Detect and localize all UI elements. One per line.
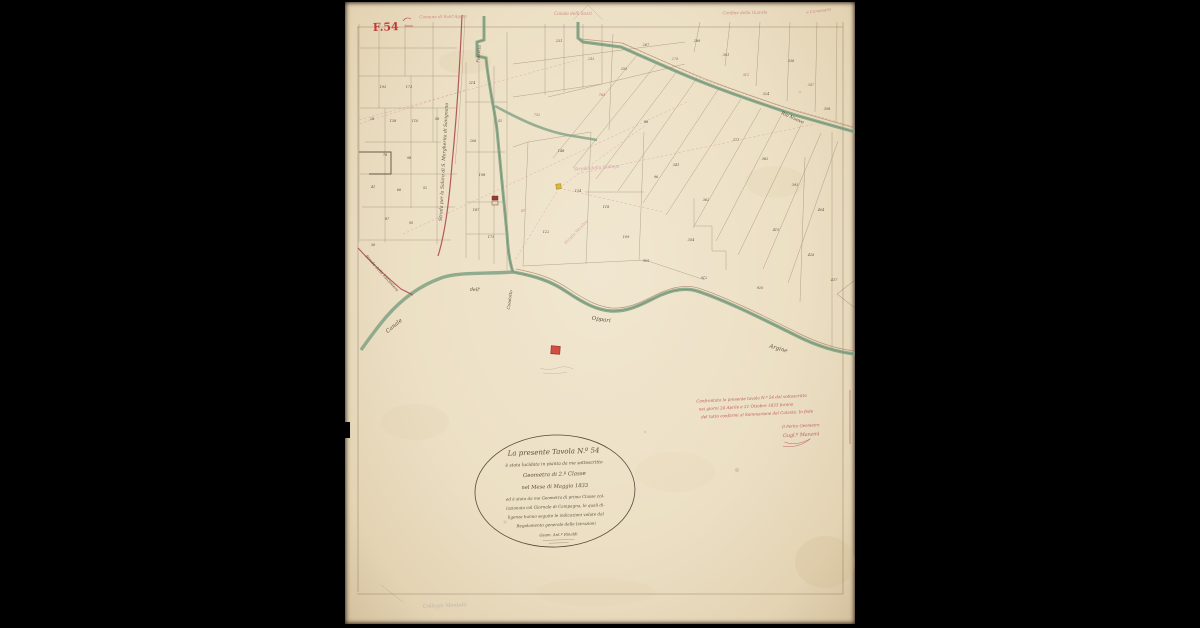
- label-gallega: Strada della Gallega: [574, 164, 620, 172]
- label-condotto: Condotto: [506, 289, 514, 309]
- parcel-number: 336: [788, 59, 795, 63]
- parcel-number: 28: [369, 117, 375, 121]
- parcel-number: 173: [406, 85, 412, 89]
- label-pencil-note: Collegio Montalti: [423, 602, 468, 610]
- parcel-number: 920: [757, 286, 764, 290]
- parcel-number: 301: [723, 53, 729, 57]
- parcel-number: 912: [701, 276, 707, 280]
- parcel-number: 52: [423, 186, 427, 190]
- parcel-number: 415: [772, 228, 779, 232]
- sheet-number-flourish: [403, 18, 413, 26]
- survey-lines: [359, 60, 815, 260]
- cartouche: La presente Tavola N.º 54 è stata lucida…: [473, 432, 637, 550]
- parcel-number: 214: [468, 81, 475, 85]
- parcel-number: 347: [808, 83, 815, 87]
- sheet-number-label: F.54: [373, 20, 400, 34]
- parcel-number: 148: [558, 149, 565, 153]
- parcel-number: 206: [469, 139, 477, 143]
- cartouche-line: ed è stata da me Geometra di prima Class…: [506, 493, 605, 501]
- label-oppari: Oppari: [591, 316, 611, 325]
- parcel-number: 87: [385, 217, 390, 221]
- cartouche-line: Geometra di 2.ª Classe: [523, 470, 586, 479]
- parcel-number: 278: [671, 57, 679, 61]
- parcel-number: 193: [380, 85, 386, 89]
- edge-note: Confine della Guarda: [722, 10, 768, 16]
- parcel-number: 341: [673, 163, 679, 167]
- background: F.54 Comune di Sant'Agata Canale delli S…: [0, 0, 1200, 628]
- parcel-number: 255: [620, 67, 627, 71]
- cartouche-line: La presente Tavola N.º 54: [507, 446, 600, 457]
- parcel-number: 437: [830, 278, 838, 282]
- note-signature-title: Il Perito Geometra: [781, 422, 820, 429]
- parcel-number: 231: [555, 39, 562, 43]
- parcel-number: 371: [733, 138, 739, 142]
- canal-rionuovo: [578, 22, 855, 132]
- building-yellow: [556, 184, 561, 189]
- parcel-number: 267: [642, 43, 650, 47]
- parcel-number: 187: [473, 208, 480, 212]
- parcel-number: 134: [575, 189, 581, 193]
- parcel-number: 358: [824, 107, 831, 111]
- parcel-number: 752: [534, 113, 540, 117]
- map-sheet: F.54 Comune di Sant'Agata Canale delli S…: [345, 2, 855, 624]
- edge-notes: Comune di Sant'Agata Canale delli Sozzi …: [419, 6, 832, 19]
- parcel-number: 122: [543, 230, 549, 234]
- parcel-number: 110: [412, 119, 419, 123]
- parcel-number: 36: [371, 243, 376, 247]
- parcel-number: 96: [654, 175, 659, 179]
- parcel-number: 109: [623, 235, 630, 239]
- parcel-number: 354: [688, 238, 694, 242]
- building-red-isolated: [551, 346, 561, 355]
- label-road-falconiera: Strada della Falconiera: [364, 254, 400, 293]
- cartouche-signature: Geom. Ant.º Rinaldi: [539, 531, 578, 537]
- edge-note: Comune di Sant'Agata: [419, 14, 467, 20]
- parcel-number: 58: [435, 117, 440, 121]
- cartouche-line: ligenze hanno seguito le indicazioni vol…: [508, 511, 605, 519]
- parcel-number: 362: [703, 198, 709, 202]
- sheet-number: F.54: [373, 18, 413, 34]
- parcel-number: 289: [693, 39, 701, 43]
- cartouche-line: nel Mese di Maggio 1833: [521, 483, 589, 491]
- map-svg: F.54 Comune di Sant'Agata Canale delli S…: [345, 2, 855, 624]
- parcel-number: 763: [599, 93, 605, 97]
- parcel-number: 312: [743, 73, 749, 77]
- signature-flourish: [782, 439, 810, 447]
- canal-right-arm: [513, 272, 855, 354]
- edge-note: Canale delli Sozzi: [554, 11, 592, 16]
- cartouche-underline: [543, 539, 575, 543]
- parcel-number: 404: [817, 208, 824, 212]
- parcel-number: 45: [497, 119, 502, 123]
- parcel-number: 138: [390, 119, 397, 123]
- verification-note: Confrontata la presente tavola N.º 54 da…: [696, 392, 821, 451]
- label-canale: Canale: [385, 317, 404, 334]
- cartouche-line: è stata lucidata in pianta da me sottosc…: [505, 460, 603, 468]
- parcel-number: 426: [807, 253, 815, 257]
- edge-chevron: [837, 280, 855, 308]
- parcel-number: 324: [763, 92, 769, 96]
- parcel-number: 175: [488, 235, 494, 239]
- parcel-number: 95: [409, 221, 413, 225]
- label-argine: Argine: [768, 343, 789, 354]
- label-dell: dell': [470, 287, 481, 294]
- buildings: [492, 184, 561, 355]
- parcel-number: 66: [397, 188, 402, 192]
- road-dash-red: [623, 43, 855, 127]
- parcel-number: 118: [603, 205, 610, 209]
- parcel-number: 88: [644, 120, 649, 124]
- parcel-number: 243: [587, 57, 594, 61]
- cartouche-line: lazionata col Giornale di Campagna, le q…: [506, 502, 605, 510]
- parcel-number: 78: [383, 153, 388, 157]
- building-outline: [492, 201, 498, 205]
- edge-note: e Campagna: [806, 6, 832, 15]
- note-signature-name: Gugl.º Manzini: [783, 431, 820, 439]
- canal-left-arm: [361, 272, 513, 350]
- parcel-number: 393: [792, 183, 798, 187]
- parcel-number: 41: [370, 185, 375, 189]
- building-red-small: [492, 196, 498, 200]
- parcel-number: 198: [479, 173, 486, 177]
- cartouche-line: Regolamento generale delle Istruzioni: [515, 521, 596, 529]
- label-strada-vecchia: Strada Vecchia: [563, 218, 589, 245]
- parcel-number: 382: [762, 157, 768, 161]
- parcel-number: 905: [643, 259, 649, 263]
